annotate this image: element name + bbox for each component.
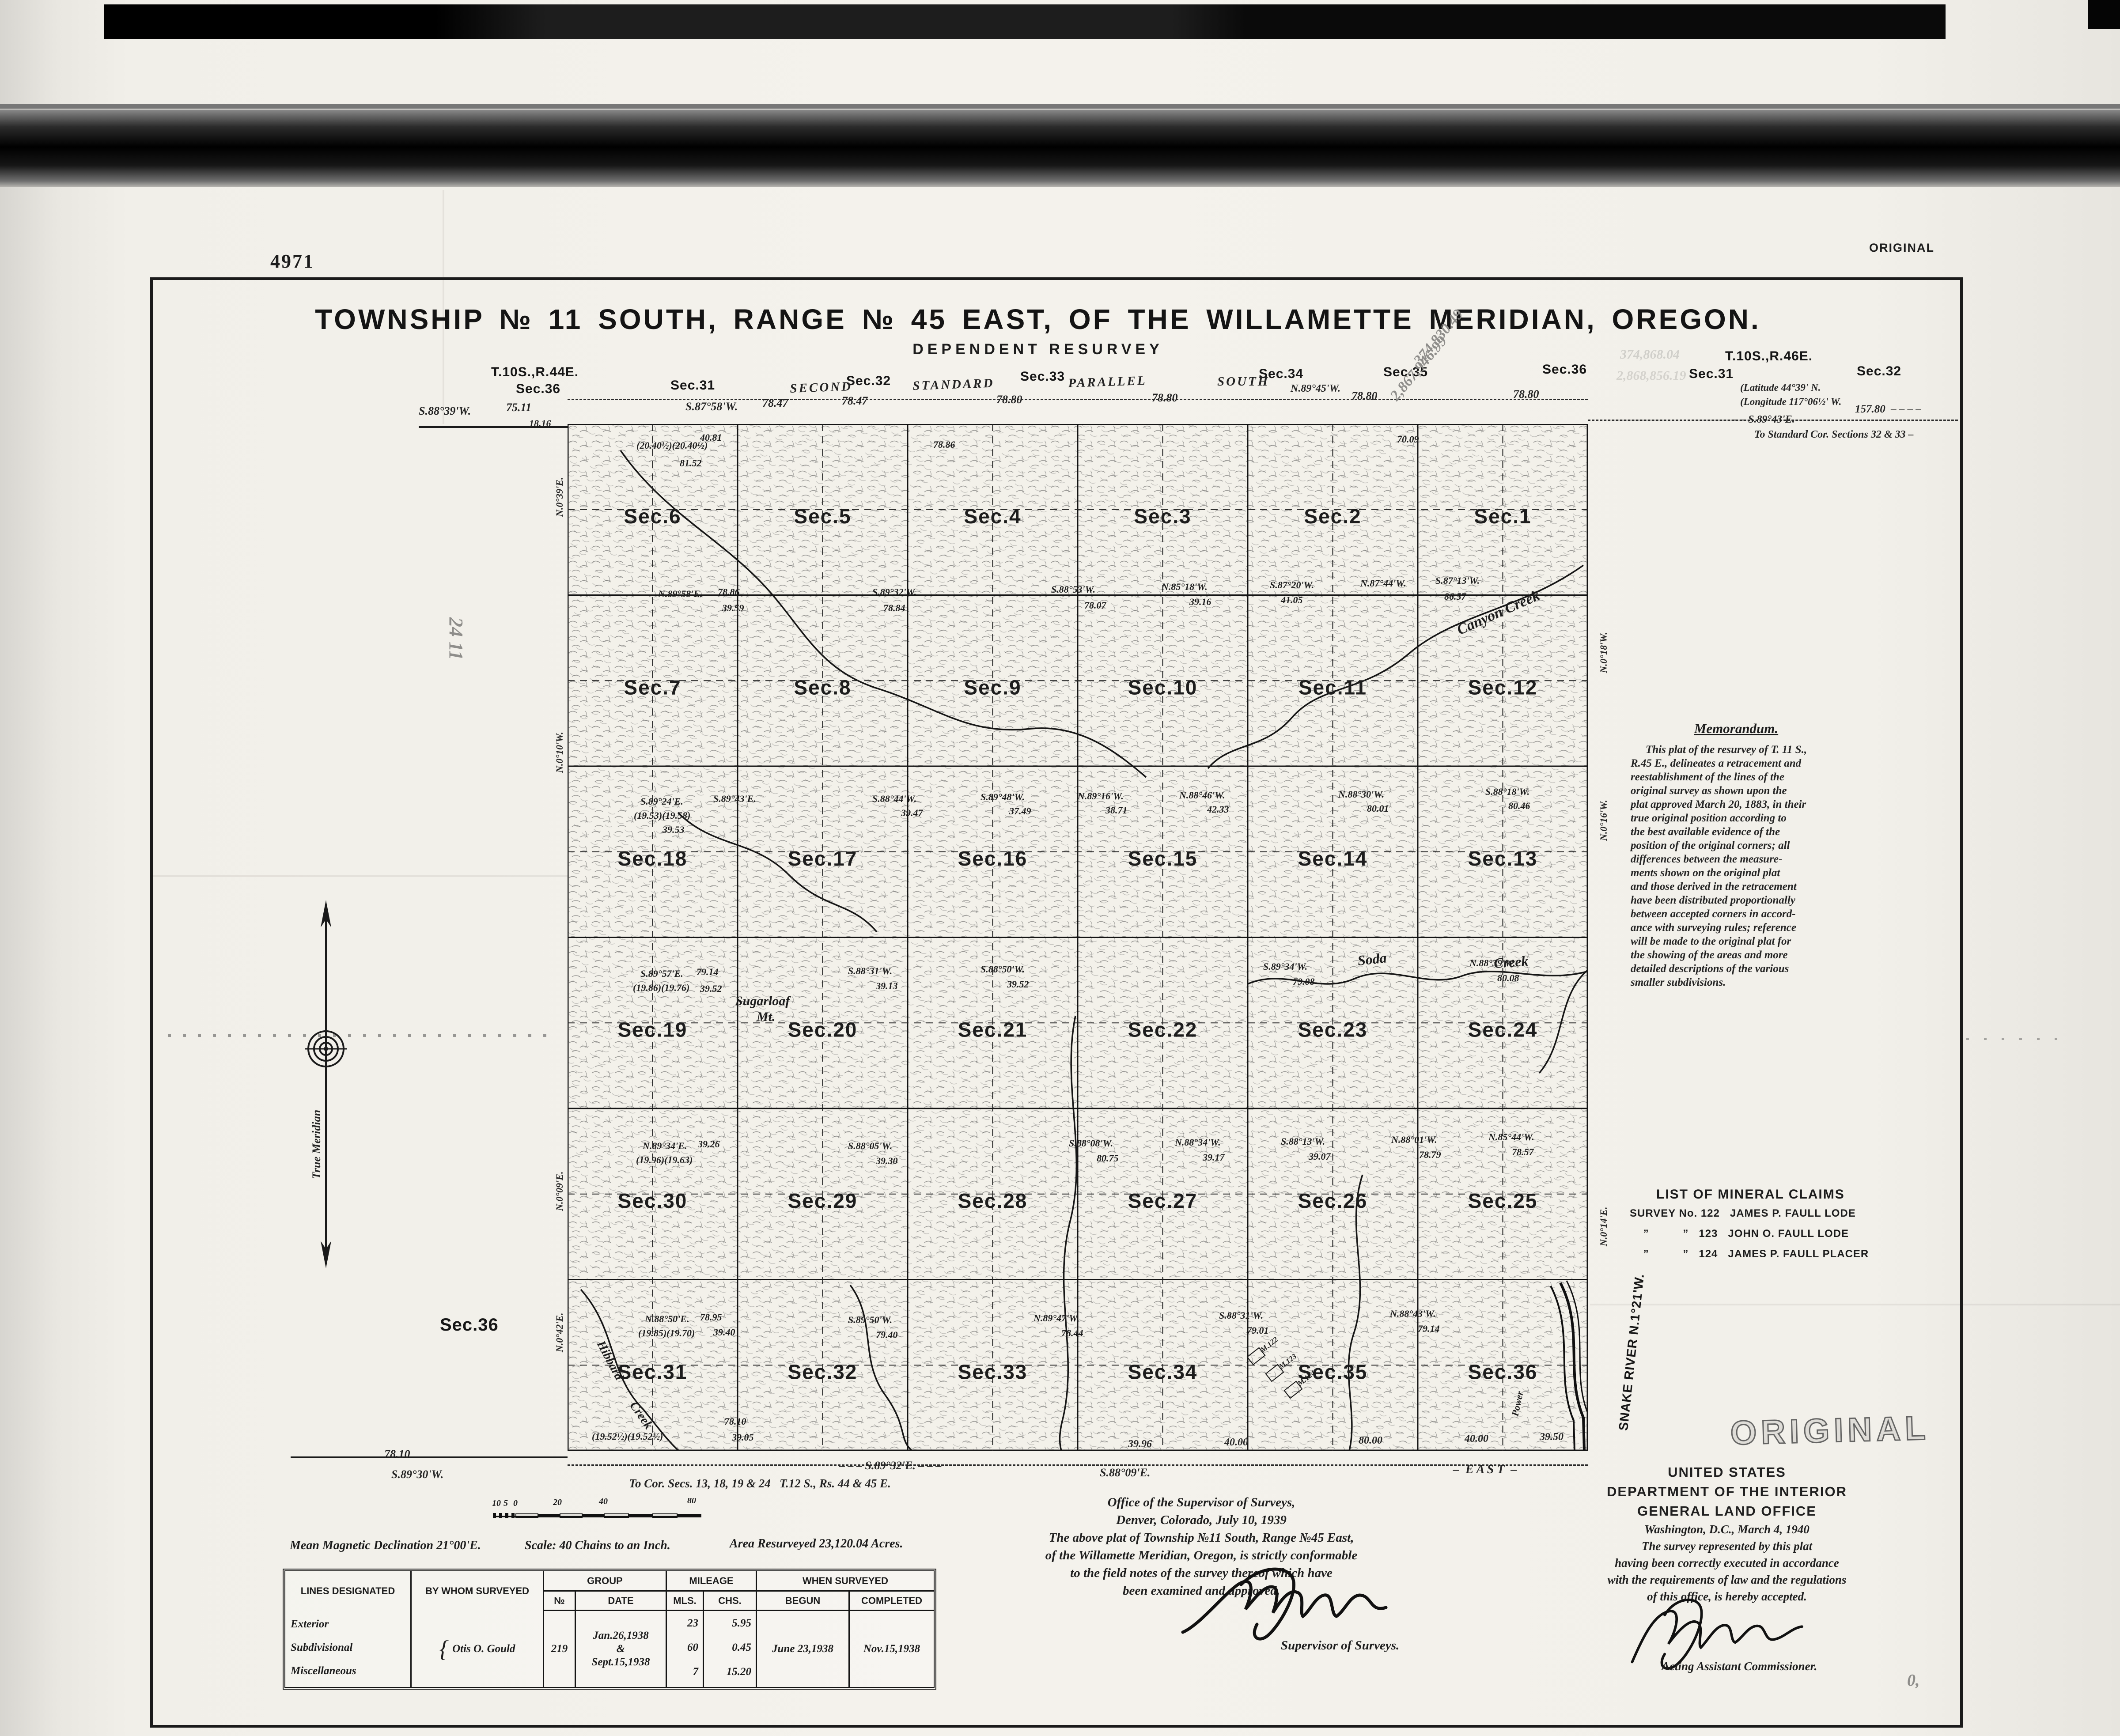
map-annotation: 78.80 [996, 394, 1022, 405]
map-annotation: STANDARD [912, 377, 995, 393]
decorative [511, 1513, 515, 1518]
decorative [677, 1514, 701, 1517]
map-annotation: 39.96 [1128, 1439, 1152, 1449]
handwritten-note: 24 11 [446, 617, 466, 660]
scale-tick-10: 10 [492, 1498, 501, 1508]
memorandum-line: smaller subdivisions. [1631, 976, 1842, 989]
acceptance-line: having been correctly executed in accord… [1519, 1554, 1934, 1571]
mls-1: 23 [687, 1617, 698, 1630]
table-header-begun: BEGUN [757, 1592, 850, 1611]
map-annotation: S.88°39'W. [419, 405, 471, 417]
decorative [505, 1513, 508, 1518]
map-annotation: N.0°39'E. [555, 477, 564, 517]
supervisor-signature [1175, 1558, 1404, 1646]
scanned-plat-page: { "page": { "doc_number": "4971", "stamp… [0, 0, 2120, 1736]
memorandum-line: will be made to the original plat for [1631, 934, 1842, 948]
memorandum-block: Memorandum. This plat of the resurvey of… [1631, 721, 1842, 989]
brace-glyph: { [439, 1635, 449, 1663]
map-annotation: 78.47 [762, 397, 788, 409]
map-annotation: T.10S.,R.46E. [1725, 350, 1813, 363]
office-certification-line: Office of the Supervisor of Surveys, [978, 1494, 1424, 1511]
map-annotation: 78.80 [1513, 389, 1539, 400]
map-annotation: 75.11 [506, 402, 531, 413]
decorative [1632, 1611, 1802, 1662]
decorative: 40 [598, 1498, 608, 1506]
memorandum-line: This plat of the resurvey of T. 11 S., [1631, 743, 1842, 756]
office-certification-line: Denver, Colorado, July 10, 1939 [978, 1511, 1424, 1529]
acceptance-line: The survey represented by this plat [1519, 1538, 1934, 1554]
map-annotation: 80.00 [1359, 1435, 1382, 1446]
table-header-completed: COMPLETED [850, 1592, 934, 1611]
map-annotation: S.87°58'W. [685, 401, 738, 412]
decorative: 5 [503, 1498, 508, 1508]
map-annotation: Sec.33 [1020, 370, 1065, 383]
mineral-claims-block: LIST OF MINERAL CLAIMS SURVEY No. 122 JA… [1630, 1187, 1877, 1263]
map-annotation: Sec.36 [440, 1316, 499, 1334]
map-annotation: To Cor. Secs. 13, 18, 19 & 24 T.12 S., R… [629, 1478, 891, 1490]
decorative [499, 1513, 502, 1518]
scale-note: Scale: 40 Chains to an Inch. [525, 1539, 670, 1552]
true-meridian-compass: True Meridian [305, 896, 353, 1274]
map-annotation: SECOND [790, 380, 853, 395]
memorandum-line: the best available evidence of the [1631, 825, 1842, 839]
memorandum-line: R.45 E., delineates a retracement and [1631, 756, 1842, 770]
map-annotation: SNAKE RIVER N.1°21'W. [1617, 1273, 1647, 1431]
table-value-date-amp: & [617, 1642, 625, 1656]
map-annotation: SOUTH [1217, 375, 1269, 388]
map-annotation: 157.80 – – – – [1855, 404, 1921, 415]
table-value-exterior: Exterior [291, 1618, 329, 1630]
area-resurveyed-note: Area Resurveyed 23,120.04 Acres. [730, 1538, 903, 1550]
map-annotation: Sec.32 [1857, 365, 1901, 378]
memorandum-line: plat approved March 20, 1883, in their [1631, 798, 1842, 811]
map-annotation: 40.00 [1224, 1437, 1248, 1448]
mineral-claims-title: LIST OF MINERAL CLAIMS [1656, 1187, 1877, 1202]
map-annotation: (Longitude 117°06½' W. [1740, 397, 1841, 407]
table-header-when: WHEN SURVEYED [757, 1571, 934, 1592]
memorandum-line: have been distributed proportionally [1631, 893, 1842, 907]
mineral-claim-line: ” ” 123 JOHN O. FAULL LODE [1630, 1225, 1877, 1243]
map-annotation: N.0°14'E. [1599, 1207, 1609, 1246]
memorandum-line: differences between the measure- [1631, 852, 1842, 866]
handwritten-note: 374,868.04 [1620, 348, 1680, 361]
table-header-group: GROUP [544, 1571, 667, 1592]
decorative: 80 [687, 1498, 696, 1505]
decorative [538, 1514, 560, 1517]
acceptance-line: with the requirements of law and the reg… [1519, 1571, 1934, 1588]
magnetic-declination-note: Mean Magnetic Declination 21°00'E. [290, 1539, 481, 1552]
table-header-whom: BY WHOM SURVEYED [412, 1571, 544, 1611]
map-annotation: 78.80 [1351, 390, 1378, 402]
map-annotation: (Latitude 44°39' N. [1740, 382, 1821, 393]
table-cell-chs: 5.95 0.45 15.20 [704, 1611, 757, 1687]
map-annotation: N.0°09'E. [555, 1172, 564, 1211]
scale-bar: 10 5 0 20 40 80 [491, 1498, 703, 1529]
map-annotation: S.89°30'W. [391, 1469, 443, 1480]
acceptance-heading: UNITED STATESDEPARTMENT OF THE INTERIORG… [1519, 1463, 1934, 1521]
table-cell-whom: { Otis O. Gould [412, 1611, 544, 1687]
decorative [582, 1514, 604, 1517]
table-value-subdivisional: Subdivisional [291, 1641, 352, 1654]
table-cell-begun: June 23,1938 [757, 1611, 850, 1687]
table-cell-group-no: 219 [544, 1611, 576, 1687]
true-meridian-label: True Meridian [311, 1110, 322, 1179]
survey-table: LINES DESIGNATED BY WHOM SURVEYED GROUP … [283, 1569, 936, 1690]
map-annotation: PARALLEL [1068, 374, 1147, 390]
decorative [1662, 1600, 1702, 1669]
table-header-mls: MLS. [667, 1592, 704, 1611]
memorandum-line: ments shown on the original plat [1631, 866, 1842, 880]
table-cell-completed: Nov.15,1938 [850, 1611, 934, 1687]
map-annotation: 78.80 [1152, 392, 1178, 404]
map-annotation: Sec.32 [846, 374, 891, 388]
supervisor-signature-title: Supervisor of Surveys. [1281, 1639, 1399, 1652]
table-header-chs: CHS. [704, 1592, 757, 1611]
commissioner-signature-title: Acting Assistant Commissioner. [1662, 1660, 1817, 1672]
map-annotation: N.0°42'E. [555, 1313, 564, 1352]
map-annotation: N.0°16'W. [1599, 800, 1609, 841]
map-annotation: Sec.36 [1542, 363, 1587, 376]
chs-3: 15.20 [727, 1666, 751, 1678]
chs-1: 5.95 [732, 1617, 751, 1630]
table-value-surveyor: Otis O. Gould [452, 1643, 515, 1655]
map-annotation: 40.00 [1465, 1433, 1488, 1444]
table-header-lines: LINES DESIGNATED [285, 1571, 412, 1611]
map-annotation: T.10S.,R.44E. [491, 366, 579, 379]
map-annotation: – – – S.89°32'E. – – – [839, 1460, 941, 1471]
map-annotation: N.0°18'W. [1599, 632, 1609, 673]
mls-3: 7 [693, 1666, 699, 1678]
decorative [628, 1514, 653, 1517]
map-annotation: Sec.31 [670, 379, 715, 392]
map-annotation: To Standard Cor. Sections 32 & 33 – [1754, 429, 1914, 440]
decorative: 10 5 0 20 40 80 [492, 1498, 696, 1508]
handwritten-note: 0, [1907, 1672, 1920, 1689]
mineral-claim-line: SURVEY No. 122 JAMES P. FAULL LODE [1630, 1205, 1877, 1222]
map-annotation: 78.47 [842, 395, 868, 407]
acceptance-text: Washington, D.C., March 4, 1940The surve… [1519, 1521, 1934, 1605]
memorandum-line: and those derived in the retracement [1631, 880, 1842, 893]
table-value-miscellaneous: Miscellaneous [291, 1665, 356, 1677]
table-header-mileage: MILEAGE [667, 1571, 757, 1592]
memorandum-line: detailed descriptions of the various [1631, 962, 1842, 976]
office-certification-line: The above plat of Township №11 South, Ra… [978, 1529, 1424, 1547]
decorative: 0 [513, 1498, 518, 1508]
decorative [1183, 1581, 1386, 1632]
map-annotation: 39.50 [1540, 1432, 1563, 1442]
acceptance-heading-line: UNITED STATES [1519, 1463, 1934, 1482]
memorandum-line: position of the original corners; all [1631, 839, 1842, 852]
table-value-date1: Jan.26,1938 [593, 1629, 648, 1642]
memorandum-text: This plat of the resurvey of T. 11 S.,R.… [1631, 743, 1842, 989]
decorative: 20 [553, 1498, 562, 1507]
table-cell-mls: 23 60 7 [667, 1611, 704, 1687]
map-annotation: Sec.31 [1689, 367, 1734, 381]
map-annotation: S.88°09'E. [1100, 1467, 1150, 1479]
table-cell-dates: Jan.26,1938 & Sept.15,1938 [576, 1611, 667, 1687]
map-annotation: N.89°45'W. [1291, 383, 1340, 394]
table-header-date: DATE [576, 1592, 667, 1611]
mineral-claims-list: SURVEY No. 122 JAMES P. FAULL LODE ” ” 1… [1630, 1205, 1877, 1263]
chs-2: 0.45 [732, 1641, 751, 1654]
mineral-claim-line: ” ” 124 JAMES P. FAULL PLACER [1630, 1245, 1877, 1263]
map-annotation: – – S.89°43'E. [1732, 414, 1795, 425]
handwritten-note: 2,868,856.19 [1616, 369, 1686, 382]
memorandum-title: Memorandum. [1631, 721, 1842, 737]
decorative [493, 1513, 701, 1518]
map-annotation: 18.16 [529, 419, 551, 428]
mls-2: 60 [687, 1641, 698, 1654]
acceptance-heading-line: GENERAL LAND OFFICE [1519, 1502, 1934, 1521]
memorandum-line: original survey as shown upon the [1631, 784, 1842, 798]
map-annotation: – E A S T – [1453, 1464, 1517, 1476]
compass-arrow [305, 896, 353, 1272]
acceptance-heading-line: DEPARTMENT OF THE INTERIOR [1519, 1482, 1934, 1502]
memorandum-line: ance with surveying rules; reference [1631, 921, 1842, 934]
memorandum-line: true original position according to [1631, 811, 1842, 825]
memorandum-line: between accepted corners in accord- [1631, 907, 1842, 921]
map-annotation: 78.10 [384, 1449, 410, 1460]
map-annotation: Sec.36 [516, 382, 560, 396]
memorandum-line: the showing of the areas and more [1631, 948, 1842, 962]
map-annotation: N.0°10'W. [555, 732, 564, 773]
memorandum-line: reestablishment of the lines of the [1631, 770, 1842, 784]
table-header-group-no: № [544, 1592, 576, 1611]
acceptance-block: UNITED STATESDEPARTMENT OF THE INTERIORG… [1519, 1463, 1934, 1605]
acceptance-line: Washington, D.C., March 4, 1940 [1519, 1521, 1934, 1538]
table-cell-lines: Exterior Subdivisional Miscellaneous [285, 1611, 412, 1687]
table-value-date2: Sept.15,1938 [592, 1656, 650, 1669]
decorative [493, 1513, 496, 1518]
